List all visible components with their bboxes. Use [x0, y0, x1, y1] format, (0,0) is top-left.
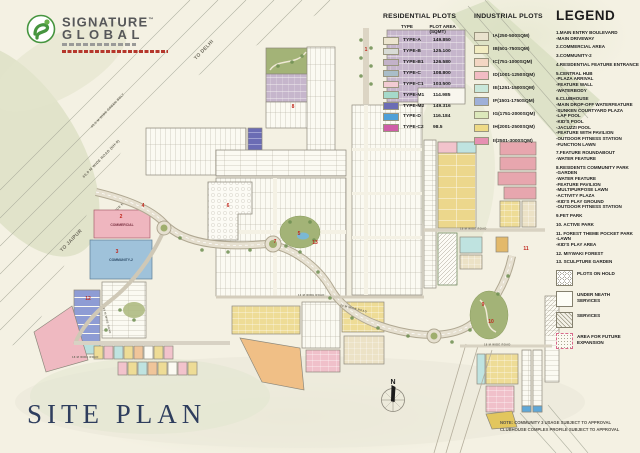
industrial-range-label: ID(1001-1250SQM): [493, 73, 535, 78]
col-header-area: PLOT AREA (SQMT): [429, 24, 471, 34]
road-label-18a: 18 M WIDE ROAD: [72, 355, 99, 359]
legend-pattern-row: AREA FOR FUTURE EXPANSION: [556, 333, 640, 349]
plot-area-value: 114.985: [433, 93, 450, 98]
industrial-range-label: IB(501-750SQM): [493, 47, 530, 52]
pattern-label: SERVICES: [577, 312, 623, 318]
legend-line: -OUTDOOR FITNESS STATION: [556, 204, 640, 210]
industrial-swatch: [474, 45, 489, 54]
plot-area-value: 103.500: [433, 82, 451, 87]
industrial-swatch: [474, 71, 489, 80]
road-label-12: 12 M WIDE ROAD: [298, 293, 325, 297]
residential-row: TYPE-C1 103.500: [383, 81, 471, 89]
plot-type-label: TYPE-C: [403, 71, 433, 76]
industrial-plots-title: INDUSTRIAL PLOTS: [474, 13, 550, 20]
industrial-range-label: IG(1751-2000SQM): [493, 112, 535, 117]
pattern-label: PLOTS ON HOLD: [577, 270, 623, 276]
legend-line: 4.RESIDENTIAL FEATURE ENTRANCE: [556, 62, 640, 68]
industrial-swatch: [474, 111, 489, 120]
plot-area-value: 126.580: [433, 60, 451, 65]
plot-area-value: 116.184: [433, 114, 450, 119]
page-title: SITE PLAN: [27, 399, 206, 430]
plot-type-label: TYPE-M2: [403, 104, 433, 109]
legend-line: -WATER FEATURE: [556, 156, 640, 162]
industrial-range-label: IC(751-1000SQM): [493, 60, 532, 65]
industrial-range-label: IA(250-500SQM): [493, 34, 530, 39]
community2-label: COMMUNITY-2: [109, 258, 133, 262]
industrial-range-label: IF(1501-1750SQM): [493, 99, 534, 104]
legend-patterns: PLOTS ON HOLD UNDER NEATH SERVICES SERVI…: [556, 270, 640, 349]
pattern-swatch: [556, 270, 573, 286]
industrial-swatch: [474, 97, 489, 106]
industrial-row: IB(501-750SQM): [474, 45, 550, 54]
residential-row: TYPE-M2 149.316: [383, 102, 471, 110]
road-label-18c: 18 M WIDE ROAD: [484, 343, 511, 347]
legend-lines: 1.MAIN ENTRY BOULEVARD-MAIN DRIVEWAY2.CO…: [556, 30, 640, 265]
industrial-range-label: IE(1251-1500SQM): [493, 86, 535, 91]
plot-type-label: TYPE-M1: [403, 93, 433, 98]
plot-type-label: TYPE-C2: [403, 125, 433, 130]
legend-line: -WATERBODY: [556, 88, 640, 94]
plot-area-value: 108.800: [433, 71, 451, 76]
plot-type-label: TYPE-C1: [403, 82, 433, 87]
industrial-swatch: [474, 137, 489, 146]
industrial-swatch: [474, 32, 489, 41]
legend-line: 9.PET PARK: [556, 213, 640, 219]
brand-line2: GLOBAL: [62, 28, 168, 41]
residential-row: TYPE-C 108.800: [383, 70, 471, 78]
plot-area-value: 98.5: [433, 125, 443, 130]
residential-row: TYPE-B1 126.580: [383, 59, 471, 67]
plot-type-swatch: [383, 48, 399, 56]
pattern-swatch: [556, 333, 573, 349]
residential-row: TYPE-M1 114.985: [383, 91, 471, 99]
plot-area-value: 125.100: [433, 49, 451, 54]
plot-type-label: TYPE-B1: [403, 60, 433, 65]
industrial-row: IH(2001-2500SQM): [474, 124, 550, 133]
industrial-row: IF(1501-1750SQM): [474, 97, 550, 106]
industrial-range-label: IH(2001-2500SQM): [493, 125, 535, 130]
plot-type-label: TYPE-B: [403, 49, 433, 54]
legend-line: -MAIN DROP-OFF WATERFEATURE: [556, 102, 640, 108]
legend-pattern-row: PLOTS ON HOLD: [556, 270, 640, 286]
legend-line: 2.COMMERCIAL AREA: [556, 44, 640, 50]
industrial-swatch: [474, 58, 489, 67]
legend-line: 12. MIYWAKI FOREST: [556, 251, 640, 257]
pattern-swatch: [556, 291, 573, 307]
industrial-row: IG(1751-2000SQM): [474, 111, 550, 120]
plot-type-swatch: [383, 37, 399, 45]
logo-leaf-icon: [26, 14, 56, 44]
residential-plots-table: RESIDENTIAL PLOTS TYPE PLOT AREA (SQMT) …: [383, 13, 471, 135]
legend-line: 10. ACTIVE PARK: [556, 222, 640, 228]
plot-type-swatch: [383, 70, 399, 78]
commercial-label: COMMERCIAL: [110, 223, 133, 227]
residential-row: TYPE-B 125.100: [383, 48, 471, 56]
industrial-swatch: [474, 84, 489, 93]
compass-n-label: N: [390, 379, 395, 386]
industrial-swatch: [474, 124, 489, 133]
residential-row: TYPE-A 149.850: [383, 37, 471, 45]
site-plan-page: TO DELHI 45.0 M WIDE GREEN BELT 60.0 M W…: [0, 0, 640, 453]
approval-note-line2: CLUBHOUSE COMPLEX PROFILE SUBJECT TO APP…: [500, 427, 619, 434]
legend-pattern-row: UNDER NEATH SERVICES: [556, 291, 640, 307]
plot-type-swatch: [383, 81, 399, 89]
industrial-row: IA(250-500SQM): [474, 32, 550, 41]
approval-note-line1: NOTE: COMMUNITY 3 USAGE SUBJECT TO APPRO…: [500, 420, 619, 427]
industrial-plots-table: INDUSTRIAL PLOTS IA(250-500SQM) IB(501-7…: [474, 13, 550, 150]
plot-type-swatch: [383, 59, 399, 67]
plot-type-label: TYPE-D: [403, 114, 433, 119]
logo-tagline: [62, 43, 136, 46]
brand-line1: SIGNATURE™: [62, 14, 168, 28]
legend-title: LEGEND: [556, 8, 640, 23]
plot-type-label: TYPE-A: [403, 38, 433, 43]
plot-area-value: 149.316: [433, 104, 451, 109]
industrial-row: IC(751-1000SQM): [474, 58, 550, 67]
residential-plots-title: RESIDENTIAL PLOTS: [383, 13, 471, 20]
plot-type-swatch: [383, 102, 399, 110]
industrial-row: IE(1251-1500SQM): [474, 84, 550, 93]
logo-address-line: [62, 50, 168, 53]
residential-row: TYPE-C2 98.5: [383, 124, 471, 132]
col-header-type: TYPE: [401, 24, 429, 34]
road-label-18b: 18 M WIDE ROAD: [460, 227, 487, 231]
pattern-label: AREA FOR FUTURE EXPANSION: [577, 333, 623, 345]
approval-note: NOTE: COMMUNITY 3 USAGE SUBJECT TO APPRO…: [500, 420, 619, 433]
plot-type-swatch: [383, 91, 399, 99]
legend-panel: LEGEND 1.MAIN ENTRY BOULEVARD-MAIN DRIVE…: [556, 8, 640, 354]
legend-line: -KID'S PLAY AREA: [556, 242, 640, 248]
plot-type-swatch: [383, 124, 399, 132]
industrial-row: ID(1001-1250SQM): [474, 71, 550, 80]
legend-line: 13. SCULPTURE GARDEN: [556, 259, 640, 265]
legend-line: -FUNCTION LAWN: [556, 142, 640, 148]
legend-pattern-row: SERVICES: [556, 312, 640, 328]
industrial-row: II(2501-3000SQM): [474, 137, 550, 146]
pattern-swatch: [556, 312, 573, 328]
legend-line: 3.COMMUNITY-2: [556, 53, 640, 59]
residential-row: TYPE-D 116.184: [383, 113, 471, 121]
residential-plots-header: TYPE PLOT AREA (SQMT): [383, 24, 471, 34]
brand-tm: ™: [148, 17, 154, 23]
signature-global-logo: SIGNATURE™ GLOBAL: [26, 14, 168, 53]
legend-line: -MAIN DRIVEWAY: [556, 36, 640, 42]
industrial-range-label: II(2501-3000SQM): [493, 139, 533, 144]
plot-area-value: 149.850: [433, 38, 451, 43]
pattern-label: UNDER NEATH SERVICES: [577, 291, 623, 303]
plot-type-swatch: [383, 113, 399, 121]
road-label-green-belt: 45.0 M WIDE GREEN BELT: [90, 92, 125, 128]
